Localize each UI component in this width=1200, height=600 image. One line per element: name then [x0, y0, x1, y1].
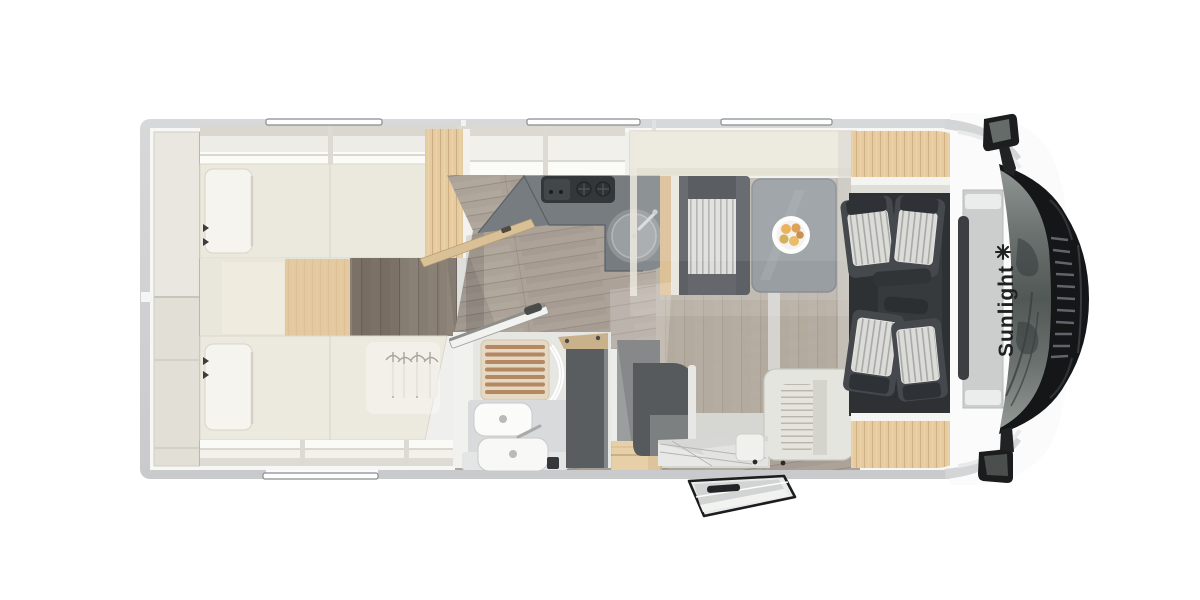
svg-text:Sunlight: Sunlight [995, 265, 1018, 357]
